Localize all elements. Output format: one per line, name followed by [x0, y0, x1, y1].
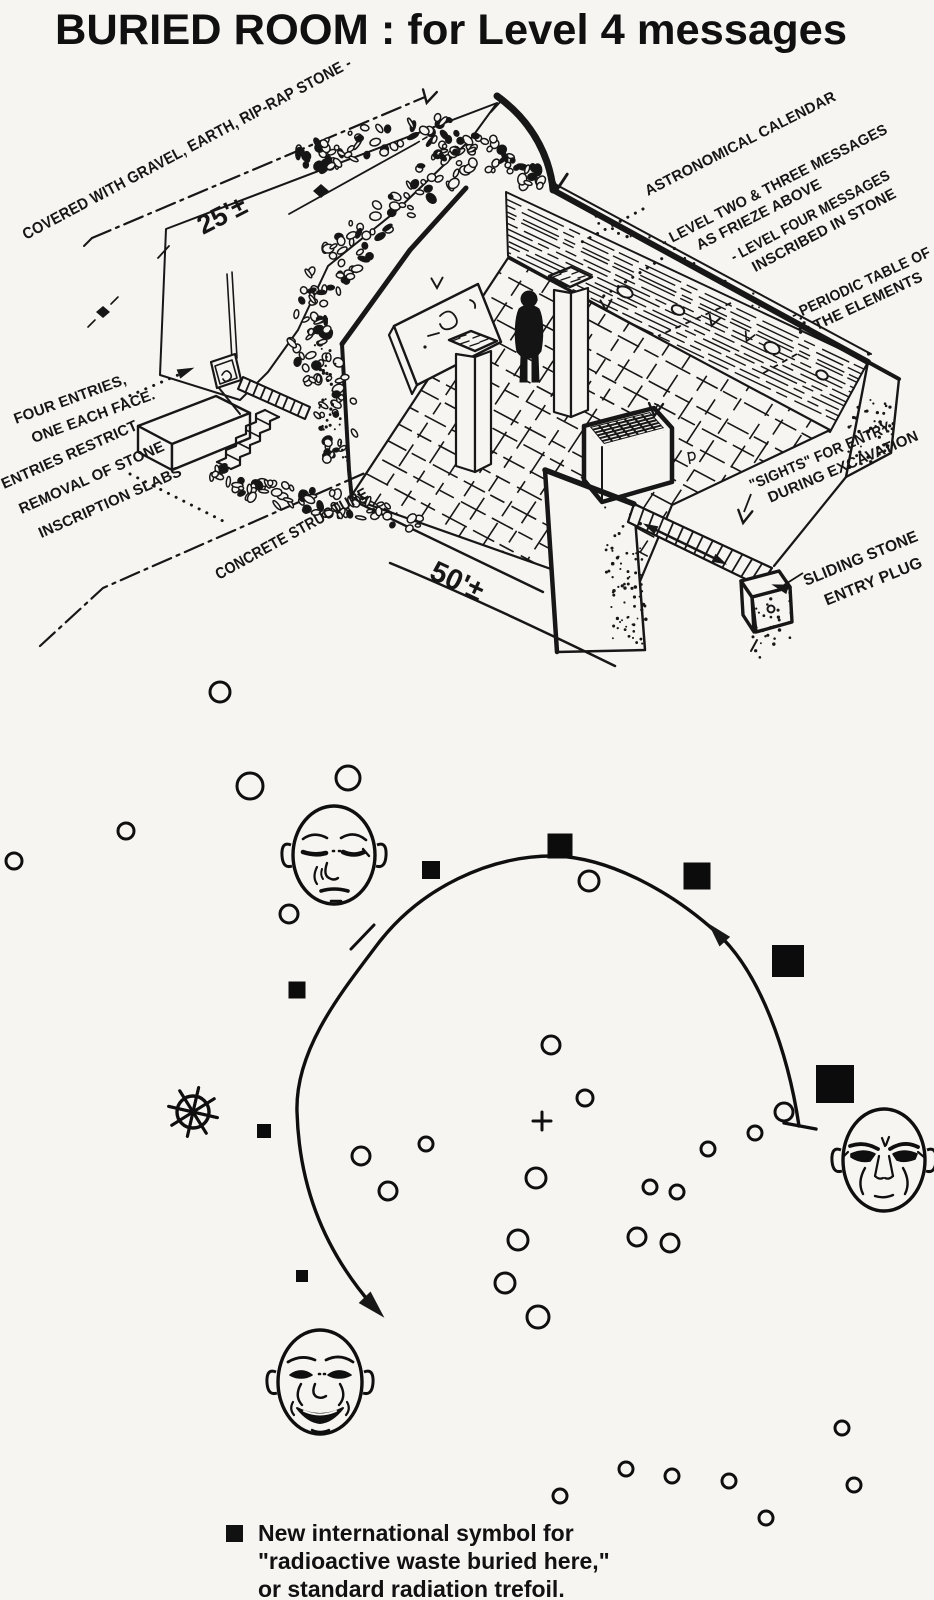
annotation-four-entries: FOUR ENTRIES,ONE EACH FACE.	[12, 364, 158, 451]
legend-waste-square-icon	[226, 1525, 243, 1542]
annotation-sliding-stone: SLIDING STONEENTRY PLUG	[801, 528, 930, 614]
waste-square	[772, 945, 804, 977]
star-circle	[210, 682, 230, 702]
star-circle	[6, 853, 22, 869]
star-circle	[526, 1168, 546, 1188]
star-circle	[775, 1103, 793, 1121]
star-circle	[847, 1478, 861, 1492]
carved-face-angry	[832, 1109, 934, 1211]
legend-line-3: or standard radiation trefoil.	[258, 1576, 565, 1600]
page-title: BURIED ROOM : for Level 4 messages	[55, 6, 847, 54]
star-circle	[336, 766, 360, 790]
star-circle	[722, 1474, 736, 1488]
star-circle	[661, 1234, 679, 1252]
entry-block-and-stairs	[138, 388, 279, 470]
legend: New international symbol for "radioactiv…	[226, 1520, 610, 1600]
star-circle	[118, 823, 134, 839]
star-circle	[835, 1421, 849, 1435]
svg-text:50'±: 50'±	[425, 555, 489, 608]
star-circle	[748, 1126, 762, 1140]
waste-square	[548, 834, 573, 859]
star-circle	[670, 1185, 684, 1199]
waste-square	[289, 982, 306, 999]
legend-line-1: New international symbol for	[258, 1520, 574, 1546]
star-circle	[379, 1182, 397, 1200]
carved-face-serene	[282, 806, 386, 904]
waste-square	[816, 1065, 854, 1103]
scanned-report-page: BURIED ROOM : for Level 4 messages	[0, 0, 934, 1600]
star-circle	[577, 1090, 593, 1106]
annotation-periodic-table: - PERIODIC TABLE OFTHE ELEMENTS	[789, 244, 934, 341]
buried-room-sketch: COVERED WITH GRAVEL, EARTH, RIP-RAP STON…	[0, 55, 934, 759]
waste-square	[422, 861, 440, 879]
star-circle	[419, 1137, 433, 1151]
star-circle	[759, 1511, 773, 1525]
legend-line-2: "radioactive waste buried here,"	[258, 1548, 610, 1574]
star-map-diagram	[6, 682, 934, 1525]
star-circle	[553, 1489, 567, 1503]
center-cross	[533, 1112, 551, 1130]
star-circle	[665, 1469, 679, 1483]
star-circle	[352, 1147, 370, 1165]
star-circle	[508, 1230, 528, 1250]
star-circle	[628, 1228, 646, 1246]
star-circle	[542, 1036, 560, 1054]
star-circle	[579, 871, 599, 891]
star-circle	[643, 1180, 657, 1194]
orbit-arc	[297, 856, 816, 1324]
dimension-room-width: 50'±	[425, 555, 489, 608]
carved-face-smiling	[267, 1330, 373, 1434]
waste-square	[257, 1124, 271, 1138]
waste-square	[296, 1270, 308, 1282]
star-circle	[237, 773, 263, 799]
star-circle	[619, 1462, 633, 1476]
sliding-stone-plug	[741, 571, 792, 651]
buried-room-figure: BURIED ROOM : for Level 4 messages	[0, 0, 934, 1600]
waste-square	[684, 863, 711, 890]
sun-wheel-icon	[169, 1088, 218, 1137]
star-circle	[701, 1142, 715, 1156]
star-circle	[527, 1306, 549, 1328]
survey-dot	[96, 306, 110, 318]
star-circle	[495, 1273, 515, 1293]
star-circle	[280, 905, 298, 923]
